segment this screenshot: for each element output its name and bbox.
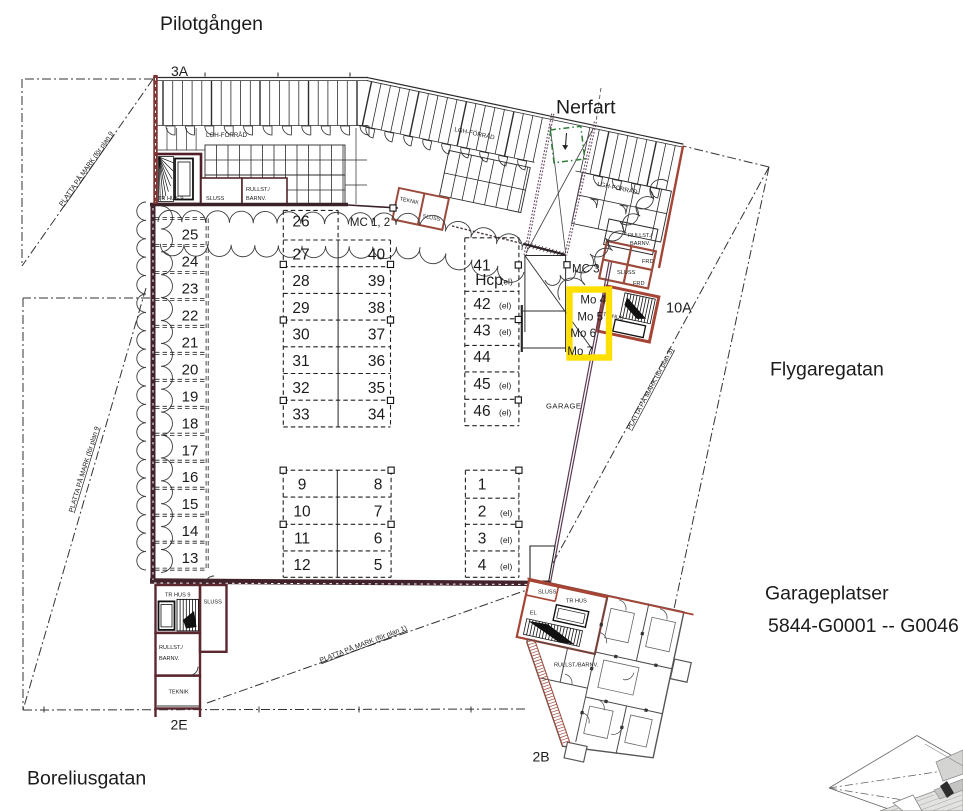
svg-text:RULLST./: RULLST./ (246, 187, 270, 193)
svg-text:(el): (el) (499, 381, 511, 391)
svg-text:MC 1, 2: MC 1, 2 (350, 217, 390, 229)
svg-text:BARNV.: BARNV. (159, 656, 180, 662)
svg-text:SLUSS: SLUSS (538, 590, 557, 596)
svg-text:Garageplatser: Garageplatser (765, 583, 889, 605)
svg-text:25: 25 (182, 227, 199, 244)
svg-text:35: 35 (368, 380, 385, 397)
svg-text:FRD: FRD (642, 259, 654, 265)
svg-text:34: 34 (368, 407, 386, 424)
svg-text:RULLST./BARNV.: RULLST./BARNV. (554, 663, 599, 669)
svg-text:29: 29 (292, 300, 309, 317)
svg-text:9: 9 (298, 476, 307, 493)
svg-text:TEKNIK: TEKNIK (169, 690, 189, 696)
svg-text:20: 20 (182, 361, 199, 378)
svg-text:27: 27 (292, 246, 309, 263)
svg-text:TR HUS: TR HUS (566, 599, 587, 605)
svg-text:2E: 2E (170, 717, 187, 733)
svg-text:(el): (el) (499, 301, 511, 311)
svg-text:(el): (el) (500, 535, 512, 545)
svg-text:RULLST./: RULLST./ (628, 233, 652, 239)
svg-text:40: 40 (368, 246, 386, 263)
svg-text:38: 38 (368, 300, 385, 317)
svg-text:21: 21 (182, 334, 199, 351)
svg-text:1: 1 (478, 476, 487, 493)
svg-text:3: 3 (478, 530, 487, 547)
svg-text:SLUSS: SLUSS (206, 196, 225, 202)
svg-text:12: 12 (293, 557, 310, 574)
svg-text:24: 24 (182, 253, 199, 270)
svg-text:37: 37 (368, 327, 385, 344)
svg-text:Mo 6: Mo 6 (570, 328, 596, 340)
svg-text:28: 28 (292, 273, 309, 290)
svg-text:7: 7 (374, 504, 383, 521)
svg-text:SLUSS: SLUSS (204, 600, 223, 606)
svg-text:10A: 10A (666, 301, 692, 317)
svg-text:Mo 7: Mo 7 (567, 346, 593, 358)
svg-text:Nerfart: Nerfart (556, 97, 616, 119)
svg-text:LGH-FÖRRÅD: LGH-FÖRRÅD (206, 132, 247, 139)
svg-text:Flygaregatan: Flygaregatan (770, 359, 884, 381)
svg-text:19: 19 (182, 388, 199, 405)
svg-text:14: 14 (182, 523, 199, 540)
svg-text:EL: EL (530, 611, 537, 617)
svg-text:6: 6 (374, 530, 383, 547)
svg-text:26: 26 (292, 213, 309, 230)
svg-text:13: 13 (182, 550, 199, 567)
svg-text:23: 23 (182, 280, 199, 297)
svg-text:43: 43 (473, 323, 490, 340)
svg-text:SLUSS: SLUSS (617, 270, 636, 276)
svg-text:10: 10 (293, 504, 311, 521)
svg-text:17: 17 (182, 442, 199, 459)
svg-text:(el): (el) (499, 407, 511, 417)
svg-text:46: 46 (473, 403, 490, 420)
svg-text:FRD: FRD (633, 281, 645, 287)
svg-text:4: 4 (478, 557, 487, 574)
svg-text:8: 8 (374, 476, 383, 493)
svg-text:TR HUS 9: TR HUS 9 (165, 593, 191, 599)
svg-text:39: 39 (368, 273, 385, 290)
svg-text:Boreliusgatan: Boreliusgatan (27, 768, 146, 790)
svg-text:Mo 4: Mo 4 (580, 295, 606, 307)
svg-text:36: 36 (368, 353, 385, 370)
svg-text:GARAGE: GARAGE (546, 402, 582, 411)
svg-text:(el): (el) (500, 562, 512, 572)
svg-text:(el): (el) (499, 327, 511, 337)
svg-text:32: 32 (292, 380, 309, 397)
svg-text:30: 30 (292, 327, 310, 344)
svg-text:42: 42 (473, 296, 490, 313)
svg-text:18: 18 (182, 415, 199, 432)
svg-text:15: 15 (182, 496, 199, 513)
svg-text:2: 2 (478, 504, 487, 521)
svg-text:16: 16 (182, 469, 199, 486)
svg-text:31: 31 (292, 353, 309, 370)
svg-text:3A: 3A (171, 63, 189, 79)
svg-text:33: 33 (292, 407, 309, 424)
svg-text:BARNV.: BARNV. (246, 196, 267, 202)
svg-text:Pilotgången: Pilotgången (160, 13, 263, 35)
svg-text:22: 22 (182, 307, 199, 324)
svg-text:Hcp: Hcp (475, 272, 503, 289)
svg-text:RULLST./: RULLST./ (159, 645, 183, 651)
svg-text:44: 44 (473, 349, 491, 366)
svg-text:MC 3: MC 3 (572, 264, 599, 276)
svg-text:5: 5 (374, 557, 383, 574)
svg-text:Mo 5: Mo 5 (577, 311, 603, 323)
svg-text:2B: 2B (532, 749, 549, 765)
svg-text:(el): (el) (501, 277, 513, 287)
svg-text:TR HUS 9: TR HUS 9 (158, 196, 184, 202)
svg-text:5844-G0001 -- G0046: 5844-G0001 -- G0046 (768, 615, 959, 637)
svg-text:11: 11 (294, 530, 310, 547)
svg-text:(el): (el) (500, 508, 512, 518)
svg-text:45: 45 (473, 376, 490, 393)
